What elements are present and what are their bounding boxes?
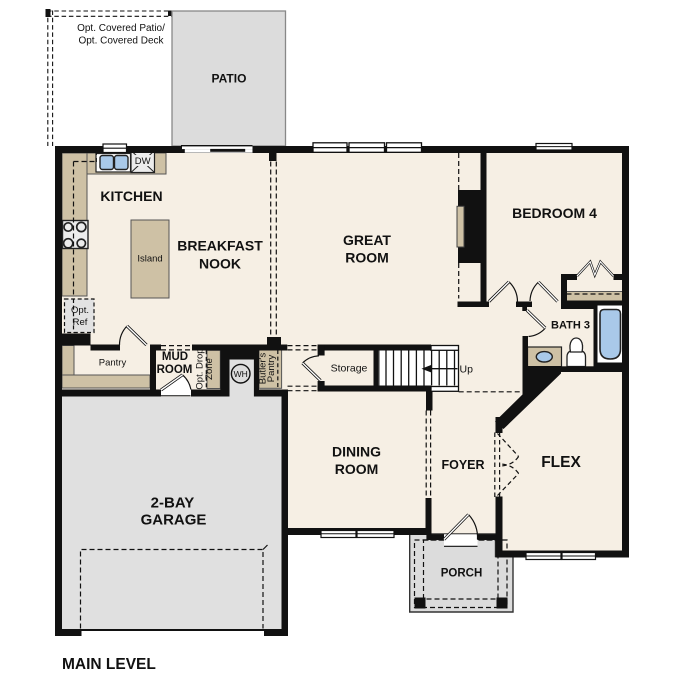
svg-text:GARAGE: GARAGE [141, 512, 207, 529]
svg-text:ROOM: ROOM [335, 461, 379, 477]
svg-text:PATIO: PATIO [212, 72, 247, 86]
svg-text:DINING: DINING [332, 444, 381, 460]
svg-text:MAIN LEVEL: MAIN LEVEL [62, 656, 156, 673]
svg-text:Storage: Storage [331, 363, 368, 375]
svg-text:NOOK: NOOK [199, 256, 241, 272]
svg-text:2-BAY: 2-BAY [151, 495, 195, 512]
svg-text:Pantry: Pantry [266, 355, 277, 383]
svg-text:MUD: MUD [162, 351, 188, 363]
svg-text:GREAT: GREAT [343, 232, 391, 248]
svg-text:Opt. Covered Deck: Opt. Covered Deck [78, 36, 164, 47]
svg-text:Opt. Covered Patio/: Opt. Covered Patio/ [77, 23, 165, 34]
svg-text:ROOM: ROOM [345, 250, 389, 266]
svg-text:PORCH: PORCH [441, 568, 483, 580]
svg-text:Pantry: Pantry [99, 358, 127, 369]
svg-text:Ref: Ref [73, 317, 88, 328]
svg-text:BEDROOM 4: BEDROOM 4 [512, 205, 597, 221]
svg-text:DW: DW [135, 156, 151, 167]
svg-text:WH: WH [234, 369, 248, 379]
svg-text:FLEX: FLEX [541, 454, 581, 471]
svg-text:KITCHEN: KITCHEN [100, 188, 162, 204]
svg-text:FOYER: FOYER [441, 458, 484, 472]
svg-text:Zone: Zone [204, 358, 215, 380]
svg-text:Island: Island [137, 254, 162, 265]
svg-text:BREAKFAST: BREAKFAST [177, 238, 263, 254]
svg-text:ROOM: ROOM [157, 364, 193, 376]
svg-text:BATH 3: BATH 3 [551, 320, 590, 332]
svg-text:Opt.: Opt. [71, 305, 89, 316]
svg-text:Up: Up [460, 364, 474, 376]
